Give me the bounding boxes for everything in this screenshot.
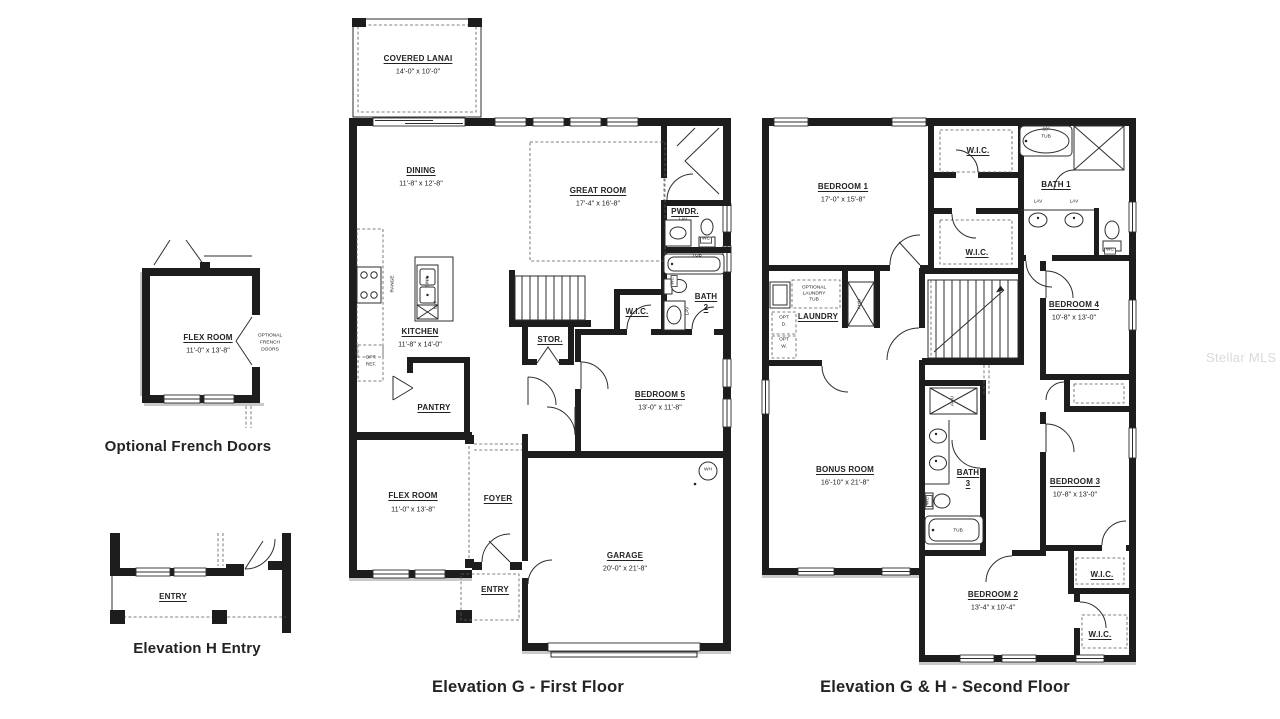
windows	[373, 118, 731, 657]
room-dims-bonus-room: 16'-10" x 21'-8"	[821, 478, 869, 485]
fixture-label-opt-d-1: OPT	[779, 317, 789, 322]
room-label-laundry: LAUNDRY	[798, 313, 838, 321]
french-door-leaves-icon	[236, 317, 252, 365]
room-label-pantry: PANTRY	[417, 404, 450, 412]
interior-walls	[349, 118, 731, 623]
room-dims-flex-room: 11'-0" x 13'-8"	[391, 505, 435, 512]
room-dims-bedroom4: 10'-8" x 13'-0"	[1052, 313, 1096, 320]
stairs-icon	[928, 280, 1018, 394]
room-label-bath1: BATH 1	[1041, 181, 1071, 189]
room-dims-bedroom2: 13'-4" x 10'-4"	[971, 603, 1015, 610]
closet-chevron-icon	[677, 128, 719, 194]
room-dims-bedroom1: 17'-0" x 15'-8"	[821, 195, 865, 202]
elevation-h-entry-plan	[108, 525, 298, 640]
stairs-icon	[515, 276, 585, 320]
fixture-label-pwdr-wc: WC	[700, 237, 712, 244]
room-label-bedroom2: BEDROOM 2	[968, 591, 1018, 599]
room-label-bath3: BATH	[957, 469, 979, 477]
walls	[110, 533, 291, 633]
room-label-bath2: BATH	[695, 293, 717, 301]
note-optional-french-3: DOORS	[261, 349, 279, 354]
room-label-wic-bedroom3: W.I.C.	[1091, 571, 1114, 579]
room-label-covered-lanai: COVERED LANAI	[384, 55, 453, 63]
room-dims-garage: 20'-0" x 21'-8"	[603, 564, 647, 571]
fixture-label-bath1-lav-1: LAV	[1034, 201, 1043, 206]
windows	[762, 118, 1136, 662]
fixture-label-range: RANGE	[392, 275, 397, 292]
room-label-foyer: FOYER	[484, 495, 513, 503]
porch-outline	[110, 610, 286, 624]
caption-optional-french-doors: Optional French Doors	[88, 438, 288, 455]
room-label-entry-inset: ENTRY	[159, 593, 187, 601]
fixture-label-opt-d-2: D.	[782, 324, 787, 329]
fixture-label-bath1-lav-2: LAV	[1070, 201, 1079, 206]
caption-second-floor: Elevation G & H - Second Floor	[795, 678, 1095, 697]
caption-first-floor: Elevation G - First Floor	[398, 678, 658, 697]
note-optional-french-1: OPTIONAL	[258, 335, 282, 340]
windows	[164, 395, 234, 403]
room-label-kitchen: KITCHEN	[402, 328, 439, 336]
room-dims-kitchen: 11'-8" x 14'-0"	[398, 340, 442, 347]
room-dims-covered-lanai: 14'-0" x 10'-0"	[396, 67, 440, 74]
fixture-label-ahu-laundry: AHU	[859, 299, 864, 309]
fixture-label-dw: DW	[435, 301, 440, 309]
fixture-label-opt-w-1: OPT	[779, 339, 789, 344]
note-optional-french-2: FRENCH	[260, 342, 280, 347]
room-label-bedroom1: BEDROOM 1	[818, 183, 868, 191]
bath3-fixtures	[925, 388, 983, 544]
exterior-walls	[762, 118, 1136, 665]
room-label-dining: DINING	[406, 167, 435, 175]
room-label-wic-top: W.I.C.	[967, 147, 990, 155]
room-dims-bedroom3: 10'-8" x 13'-0"	[1053, 490, 1097, 497]
upper-fragment	[154, 240, 252, 270]
room-label-bath3-number: 3	[966, 480, 971, 488]
room-label-great-room: GREAT ROOM	[570, 187, 627, 195]
room-dims-bedroom5: 13'-0" x 11'-8"	[638, 403, 682, 410]
room-label-pwdr: PWDR.	[671, 208, 699, 216]
fixture-label-pwdr-lav: LAV	[679, 219, 688, 224]
note-optional-laundry-3: TUB	[809, 299, 819, 304]
room-label-stor: STOR.	[537, 336, 562, 344]
second-floor-plan	[762, 110, 1136, 662]
room-label-garage: GARAGE	[607, 552, 643, 560]
room-dims-flex-inset: 11'-0" x 13'-8"	[186, 346, 230, 353]
fixture-label-bath1-wc: WC	[1104, 248, 1116, 255]
water-heater-icon	[694, 462, 717, 485]
room-label-bedroom5: BEDROOM 5	[635, 391, 685, 399]
fixture-label-opt-ref-2: REF.	[366, 364, 376, 369]
fixture-label-sink: SINK	[427, 276, 432, 287]
floor-plan-sheet: FLEX ROOM 11'-0" x 13'-8" OPTIONAL FRENC…	[0, 0, 1280, 719]
fixture-label-ahu-bath3: AHU	[952, 396, 957, 406]
fixture-label-bath2-tub: TUB	[692, 255, 702, 260]
fixture-label-opt-ref-1: OPT.	[366, 357, 377, 362]
room-label-bedroom4: BEDROOM 4	[1049, 301, 1099, 309]
fixture-label-bath2-lav: LAV	[687, 307, 692, 316]
room-label-bath2-number: 2	[704, 304, 709, 312]
fixture-label-bath3-wc: WC	[926, 495, 933, 507]
room-label-wic-first: W.I.C.	[626, 308, 649, 316]
room-dims-dining: 11'-8" x 12'-8"	[399, 179, 443, 186]
room-label-flex-inset: FLEX ROOM	[183, 334, 232, 342]
room-label-entry: ENTRY	[481, 586, 509, 594]
watermark: Stellar MLS	[1206, 350, 1277, 365]
room-label-wic-bedroom2: W.I.C.	[1089, 631, 1112, 639]
room-label-wic-mid: W.I.C.	[966, 249, 989, 257]
room-dims-great-room: 17'-4" x 16'-8"	[576, 199, 620, 206]
caption-elevation-h-entry: Elevation H Entry	[97, 640, 297, 657]
fixture-label-opt-w-2: W.	[781, 346, 787, 351]
fixture-label-bath2-wc: WC	[671, 275, 678, 287]
room-label-bonus-room: BONUS ROOM	[816, 466, 874, 474]
fixture-label-wh: WH	[704, 469, 712, 474]
fixture-label-bath3-tub: TUB	[953, 530, 963, 535]
fixture-label-60: 60"	[1042, 129, 1049, 134]
fixture-label-60-tub: TUB	[1041, 136, 1051, 141]
room-label-bedroom3: BEDROOM 3	[1050, 478, 1100, 486]
room-label-flex-room: FLEX ROOM	[388, 492, 437, 500]
